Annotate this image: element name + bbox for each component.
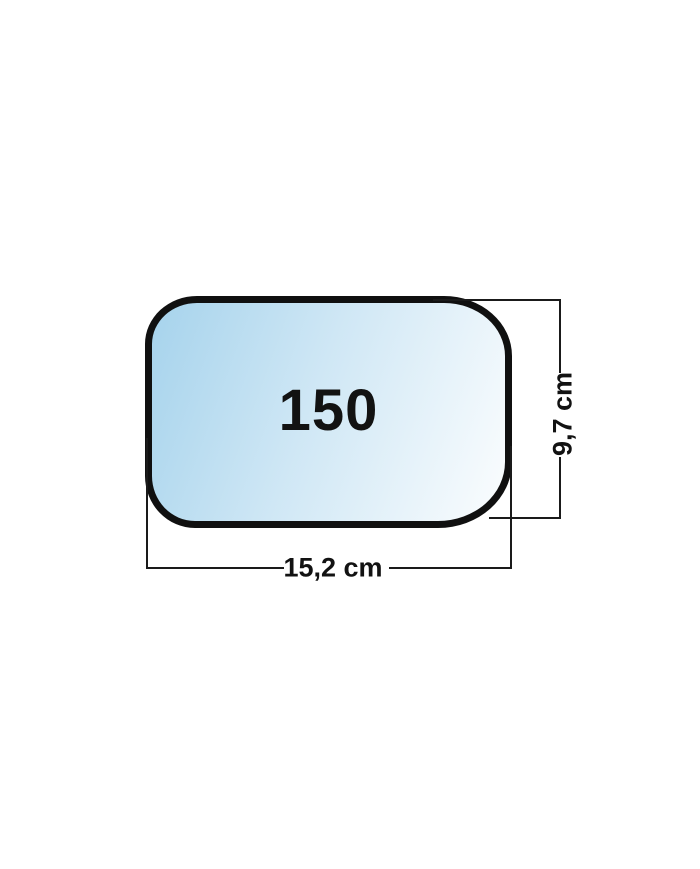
- height-dimension-extension-top: [433, 299, 561, 301]
- width-dimension-line-right-segment: [389, 567, 510, 569]
- height-dimension-label: 9,7 cm: [550, 372, 577, 456]
- dimension-diagram: 150 9,7 cm 15,2 cm: [0, 0, 700, 869]
- height-dimension-line-lower: [559, 457, 561, 519]
- width-dimension-label: 15,2 cm: [283, 555, 382, 582]
- height-dimension-line-upper: [559, 299, 561, 373]
- width-dimension-extension-right: [510, 446, 512, 569]
- width-dimension-line-left-segment: [146, 567, 284, 569]
- mirror-glass-shape: 150: [145, 296, 512, 528]
- part-number-label: 150: [279, 382, 379, 442]
- width-dimension-extension-left: [146, 438, 148, 569]
- height-dimension-extension-bottom: [489, 517, 561, 519]
